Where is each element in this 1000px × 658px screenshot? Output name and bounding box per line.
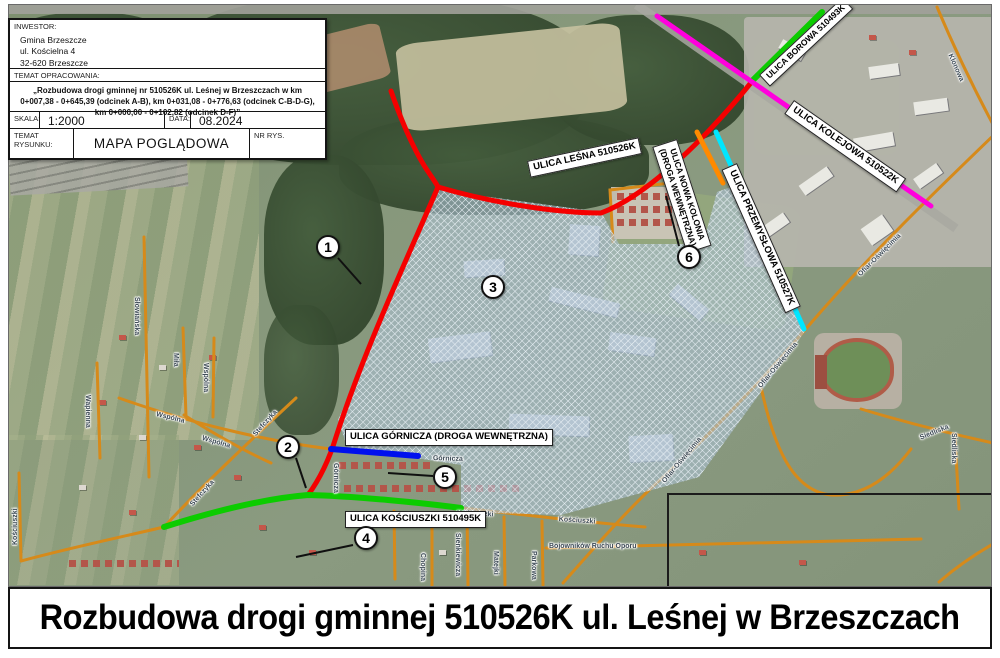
investor-address: Gmina Brzeszcze ul. Kościelna 4 32-620 B… bbox=[10, 31, 325, 69]
marker-5-label: 5 bbox=[441, 469, 449, 485]
subject-label-row: TEMAT OPRACOWANIA: bbox=[10, 69, 325, 82]
marker-5: 5 bbox=[433, 465, 457, 489]
marker-3-label: 3 bbox=[489, 279, 497, 295]
date-value: 08.2024 bbox=[190, 112, 325, 128]
map-sheet: { "title_block": { "investor_label": "IN… bbox=[0, 0, 1000, 658]
street-label: Wspólna bbox=[202, 363, 209, 392]
title-block: INWESTOR: Gmina Brzeszcze ul. Kościelna … bbox=[8, 18, 327, 160]
street-label: Kościuszki bbox=[12, 508, 19, 545]
investor-section: INWESTOR: Gmina Brzeszcze ul. Kościelna … bbox=[10, 20, 325, 69]
street-label: Słowiańska bbox=[133, 297, 140, 335]
street-mila bbox=[183, 328, 186, 417]
scale-value: 1:2000 bbox=[39, 112, 164, 128]
route-label-gornicza: ULICA GÓRNICZA (DROGA WEWNĘTRZNA) bbox=[345, 429, 553, 446]
marker-2-label: 2 bbox=[284, 439, 292, 455]
marker-6-label: 6 bbox=[685, 249, 693, 265]
marker-4: 4 bbox=[354, 526, 378, 550]
drawing-title-row: TEMAT RYSUNKU: MAPA POGLĄDOWA NR RYS. bbox=[10, 129, 325, 158]
drawing-value-cell: MAPA POGLĄDOWA bbox=[73, 129, 249, 158]
sheet-title: Rozbudowa drogi gminnej 510526K ul. Leśn… bbox=[40, 598, 960, 638]
marker-4-label: 4 bbox=[362, 530, 370, 546]
leader-2 bbox=[296, 458, 306, 488]
street-label: Sienkiewicza bbox=[454, 533, 461, 576]
date-label: DATA: bbox=[164, 112, 190, 128]
street-elbow bbox=[761, 387, 911, 495]
subject-label: TEMAT OPRACOWANIA: bbox=[10, 69, 325, 80]
street-label: Matejki bbox=[492, 551, 499, 575]
sheet-title-bar: Rozbudowa drogi gminnej 510526K ul. Leśn… bbox=[8, 587, 992, 649]
scale-date-row: SKALA: 1:2000 DATA: 08.2024 bbox=[10, 112, 325, 129]
investor-line: 32-620 Brzeszcze bbox=[20, 58, 325, 69]
number-label: NR RYS. bbox=[249, 129, 325, 158]
project-area-hatch-b bbox=[338, 184, 806, 515]
street-label: Górnicza bbox=[332, 463, 339, 493]
street-bottom-right bbox=[939, 544, 992, 582]
marker-6: 6 bbox=[677, 245, 701, 269]
street-label: Chopina bbox=[419, 553, 426, 581]
street-label: Wapienna bbox=[84, 395, 91, 428]
leader-1 bbox=[338, 258, 361, 284]
marker-3: 3 bbox=[481, 275, 505, 299]
leader-4 bbox=[296, 545, 353, 557]
investor-line: ul. Kościelna 4 bbox=[20, 46, 325, 57]
drawing-label: TEMAT RYSUNKU: bbox=[10, 129, 73, 158]
street-parkowa bbox=[542, 521, 543, 585]
street-wspolna-v bbox=[213, 338, 214, 417]
street-label: Bojowników Ruchu Oporu bbox=[549, 543, 637, 550]
street-label: Siedliska bbox=[950, 433, 957, 463]
investor-line: Gmina Brzeszcze bbox=[20, 35, 325, 46]
investor-label: INWESTOR: bbox=[10, 20, 325, 31]
street-slowianska bbox=[144, 237, 149, 477]
marker-1-label: 1 bbox=[324, 239, 332, 255]
project-area-hatch bbox=[338, 184, 806, 515]
marker-1: 1 bbox=[316, 235, 340, 259]
street-label: Miła bbox=[172, 353, 179, 367]
street-kosciuszki-west bbox=[21, 527, 164, 561]
street-label: Parkowa bbox=[530, 551, 537, 580]
route-lesna-north bbox=[391, 91, 438, 187]
scale-label: SKALA: bbox=[10, 112, 39, 128]
drawing-value: MAPA POGLĄDOWA bbox=[74, 129, 249, 158]
street-label: Górnicza bbox=[433, 455, 463, 463]
street-edge-left bbox=[19, 473, 21, 559]
street-klonowa bbox=[937, 7, 992, 132]
leader-5 bbox=[388, 473, 433, 476]
marker-2: 2 bbox=[276, 435, 300, 459]
street-wapienna bbox=[97, 363, 100, 458]
subject-text-row: „Rozbudowa drogi gminnej nr 510526K ul. … bbox=[10, 82, 325, 112]
street-wspolna-d bbox=[184, 415, 271, 463]
street-matejki bbox=[504, 517, 505, 585]
